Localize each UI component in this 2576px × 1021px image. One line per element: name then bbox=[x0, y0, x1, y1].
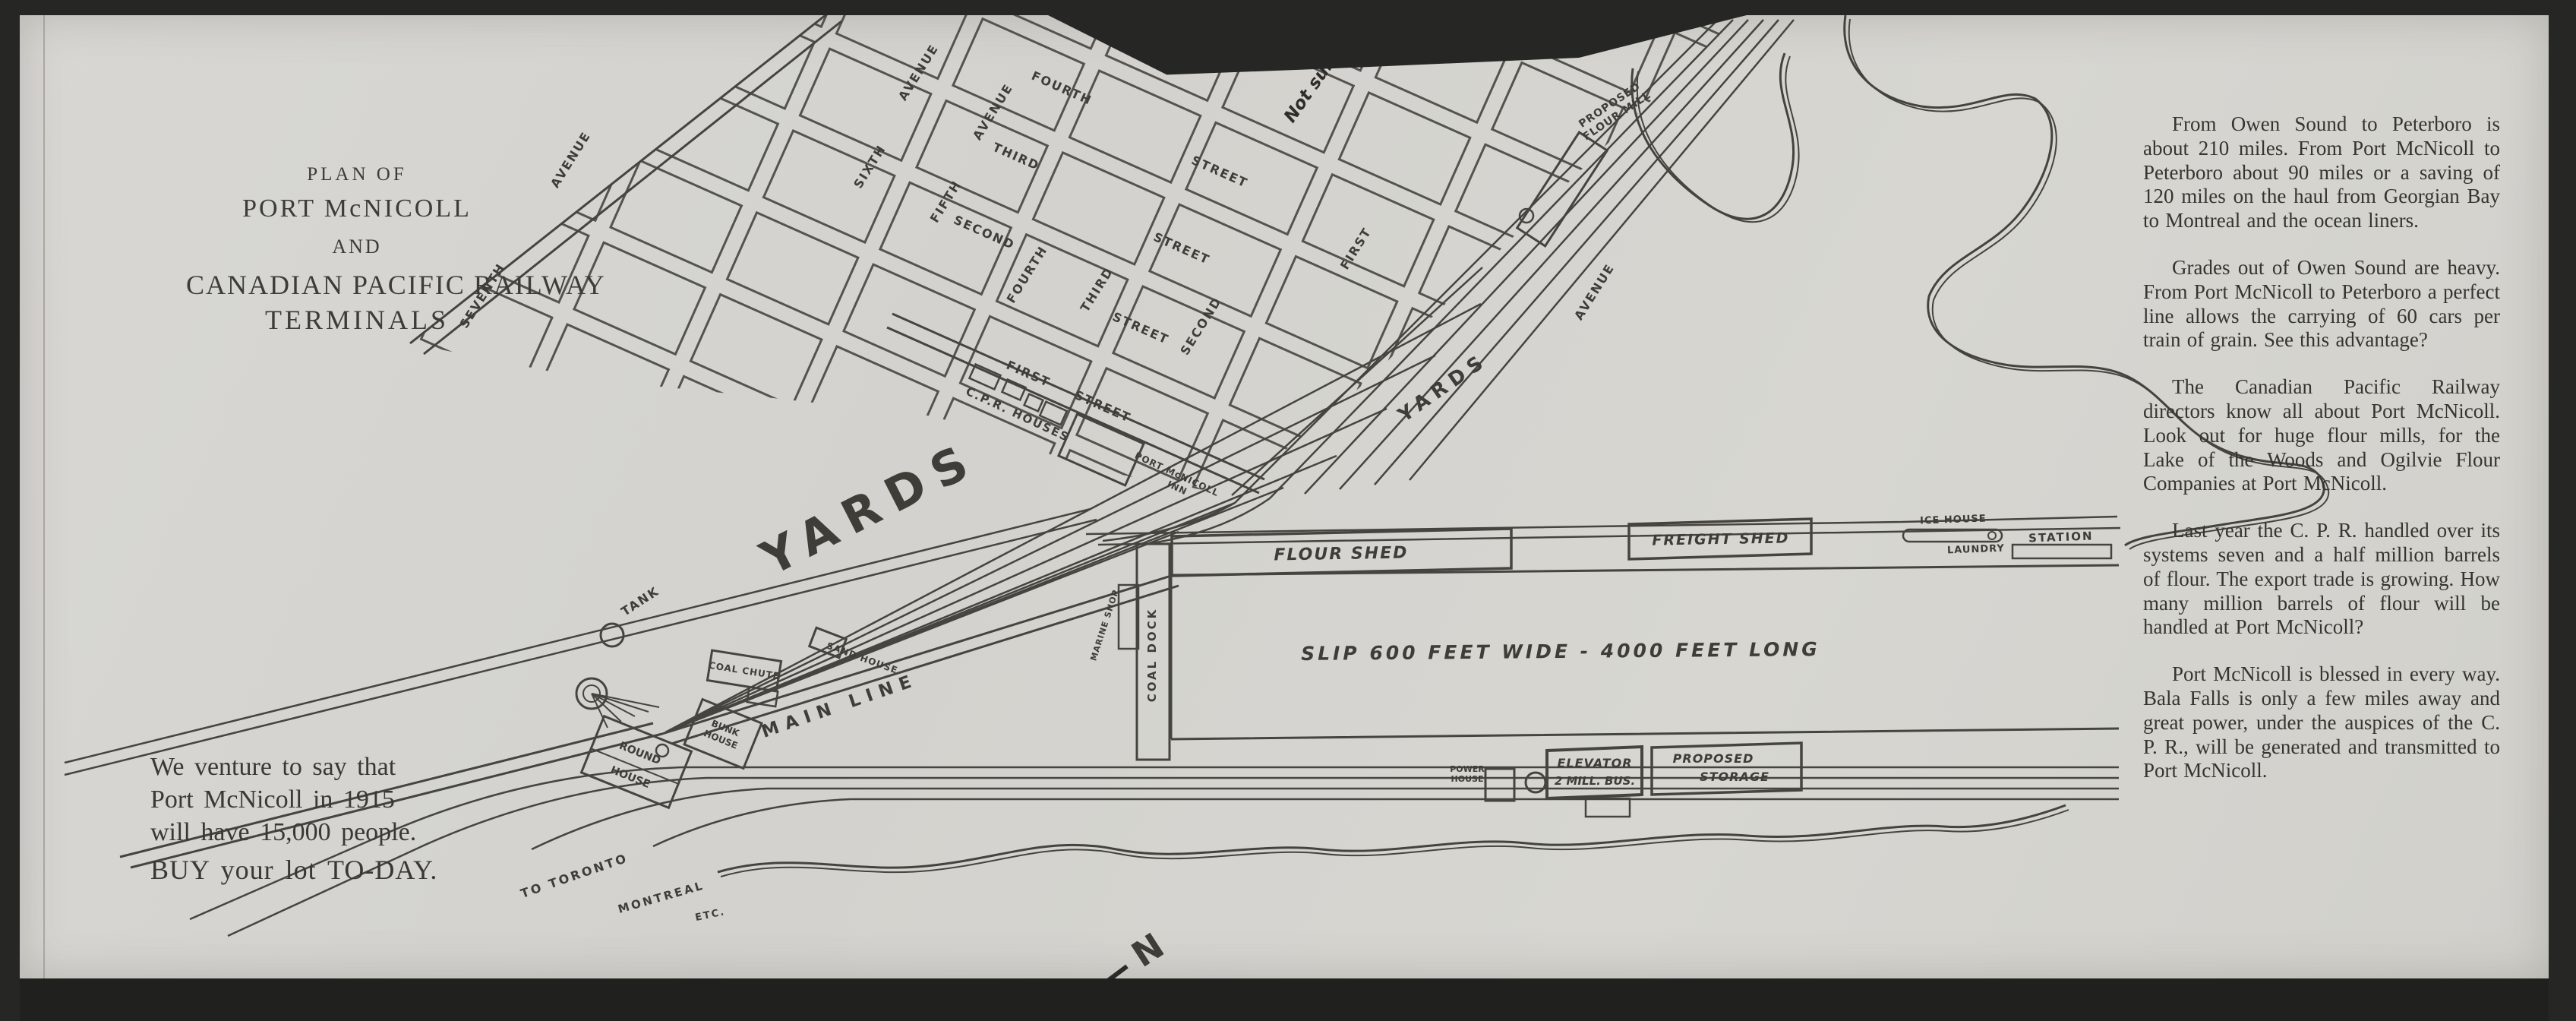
label-main-line: MAIN LINE bbox=[759, 670, 920, 742]
svg-text:2 MILL. BUS.: 2 MILL. BUS. bbox=[1555, 774, 1635, 788]
station bbox=[2012, 545, 2111, 558]
title-plan-of: PLAN OF bbox=[186, 164, 528, 185]
article-column: From Owen Sound to Peterboro is about 21… bbox=[2143, 112, 2500, 806]
shoreline-lower bbox=[718, 805, 2069, 877]
label-power-house: POWER HOUSE bbox=[1450, 764, 1485, 784]
svg-text:STORAGE: STORAGE bbox=[1700, 770, 1769, 784]
title-cpr: CANADIAN PACIFIC RAILWAY bbox=[186, 269, 528, 301]
svg-text:ELEVATOR: ELEVATOR bbox=[1557, 756, 1632, 770]
marine-shop bbox=[1119, 585, 1138, 649]
label-laundry: LAUNDRY bbox=[1947, 543, 2005, 557]
label-slip: SLIP 600 FEET WIDE - 4000 FEET LONG bbox=[1301, 638, 1820, 665]
article-paragraph: Port McNicoll is blessed in every way. B… bbox=[2143, 662, 2500, 783]
article-paragraph: From Owen Sound to Peterboro is about 21… bbox=[2143, 112, 2500, 233]
promo-text: We venture to say that Port McNicoll in … bbox=[150, 751, 485, 887]
svg-text:PROPOSED: PROPOSED bbox=[1673, 751, 1754, 766]
label-coal-dock: COAL DOCK bbox=[1145, 608, 1159, 703]
title-port-mcnicoll: PORT McNICOLL bbox=[186, 194, 528, 223]
label-tank: TANK bbox=[618, 583, 661, 618]
label-ice-house: ICE HOUSE bbox=[1920, 513, 1987, 526]
ice-house-circle bbox=[1988, 532, 1996, 539]
label-to-toronto: TO TORONTO bbox=[519, 851, 630, 901]
north-arrow-letter: N bbox=[1124, 925, 1171, 975]
photo-border-right bbox=[2549, 0, 2576, 1021]
label-elevator: ELEVATOR 2 MILL. BUS. bbox=[1555, 756, 1635, 788]
article-paragraph: Last year the C. P. R. handled over its … bbox=[2143, 519, 2500, 640]
promo-line: Port McNicoll in 1915 bbox=[150, 783, 485, 816]
label-yards-small: YARDS bbox=[1394, 349, 1492, 428]
elevator bbox=[1547, 747, 1642, 798]
promo-line: We venture to say that bbox=[150, 751, 485, 783]
title-terminals: TERMINALS bbox=[186, 304, 528, 336]
article-paragraph: The Canadian Pacific Railway directors k… bbox=[2143, 375, 2500, 496]
title-and: AND bbox=[186, 235, 528, 258]
label-etc: ETC. bbox=[694, 906, 726, 924]
promo-buy-line: BUY your lot TO-DAY. bbox=[150, 854, 485, 887]
svg-text:POWER: POWER bbox=[1450, 764, 1485, 774]
promo-line: will have 15,000 people. bbox=[150, 816, 485, 849]
label-montreal: MONTREAL bbox=[617, 878, 706, 916]
label-station: STATION bbox=[2028, 529, 2094, 545]
label-freight-shed: FREIGHT SHED bbox=[1652, 529, 1789, 548]
label-coal-chute: COAL CHUTE bbox=[708, 660, 781, 682]
elevator-annex bbox=[1586, 798, 1630, 817]
paper-fold-line bbox=[43, 15, 45, 978]
street-grid bbox=[410, 12, 1741, 495]
svg-text:AVENUE: AVENUE bbox=[548, 128, 594, 190]
tank-track bbox=[65, 509, 1097, 775]
power-house bbox=[1485, 769, 1514, 801]
photo-border-left bbox=[0, 0, 20, 1021]
article-paragraph: Grades out of Owen Sound are heavy. From… bbox=[2143, 256, 2500, 352]
svg-text:HOUSE: HOUSE bbox=[1451, 774, 1484, 784]
photo-border-top bbox=[0, 0, 2576, 15]
label-round-house-1: ROUND bbox=[617, 740, 662, 767]
label-flour-shed: FLOUR SHED bbox=[1274, 543, 1408, 564]
photo-border-bottom bbox=[0, 978, 2576, 1021]
svg-text:AVENUE: AVENUE bbox=[1571, 261, 1618, 322]
